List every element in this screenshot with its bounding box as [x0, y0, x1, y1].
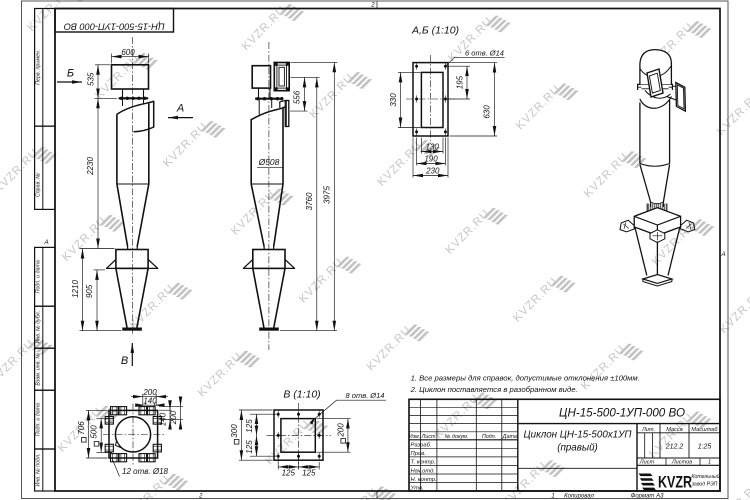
- svg-text:Дата: Дата: [502, 434, 517, 440]
- svg-text:Копировал: Копировал: [564, 494, 594, 500]
- svg-text:130: 130: [426, 143, 440, 152]
- svg-text:Листов: Листов: [671, 460, 692, 466]
- svg-text:А,Б (1:10): А,Б (1:10): [411, 25, 459, 37]
- svg-text:Инв. № дубл.: Инв. № дубл.: [36, 311, 42, 344]
- svg-text:Перв. примен.: Перв. примен.: [36, 50, 42, 85]
- svg-text:200: 200: [169, 410, 178, 425]
- svg-text:Н. контр.: Н. контр.: [411, 477, 437, 483]
- svg-text:8 отв. Ø14: 8 отв. Ø14: [346, 391, 385, 400]
- svg-text:300: 300: [230, 424, 239, 438]
- svg-text:2: 2: [370, 3, 375, 9]
- svg-text:190: 190: [424, 155, 438, 164]
- svg-text:Подп.: Подп.: [482, 434, 496, 440]
- svg-text:Масштаб: Масштаб: [691, 427, 718, 433]
- svg-text:230: 230: [425, 167, 440, 176]
- svg-text:Подп. и дата: Подп. и дата: [36, 403, 42, 436]
- svg-text:125: 125: [245, 440, 254, 454]
- svg-text:Ø508: Ø508: [258, 157, 280, 167]
- svg-text:(правый): (правый): [557, 443, 598, 454]
- svg-text:ЦН-15-500-1УП-000 ВО: ЦН-15-500-1УП-000 ВО: [559, 405, 685, 419]
- svg-text:Разраб.: Разраб.: [411, 443, 432, 449]
- svg-text:Б: Б: [67, 68, 74, 80]
- svg-text:Формат А3: Формат А3: [631, 494, 664, 500]
- svg-text:А: А: [43, 239, 48, 246]
- svg-text:2: 2: [198, 494, 203, 500]
- svg-text:140: 140: [158, 412, 167, 426]
- svg-text:В: В: [121, 355, 128, 367]
- svg-text:6 отв. Ø14: 6 отв. Ø14: [465, 49, 504, 58]
- svg-text:905: 905: [85, 284, 94, 298]
- svg-text:Нач.отд.: Нач.отд.: [411, 468, 435, 474]
- svg-text:Пров.: Пров.: [411, 451, 426, 457]
- svg-text:1. Все размеры для справок, д: 1. Все размеры для справок, допустимые о…: [411, 374, 640, 383]
- svg-text:KVZR: KVZR: [658, 474, 692, 492]
- svg-text:330: 330: [389, 93, 398, 107]
- svg-text:1: 1: [708, 460, 711, 466]
- svg-text:Лист: Лист: [639, 460, 655, 466]
- svg-text:Лит.: Лит.: [641, 427, 655, 433]
- svg-text:1210: 1210: [71, 280, 80, 298]
- svg-text:Подп. и дата: Подп. и дата: [36, 260, 42, 293]
- svg-text:12 отв. Ø18: 12 отв. Ø18: [122, 467, 169, 476]
- svg-text:600: 600: [121, 48, 135, 57]
- svg-text:А: А: [176, 103, 184, 115]
- svg-text:Лист: Лист: [421, 434, 436, 440]
- svg-text:630: 630: [483, 105, 492, 119]
- svg-text:200: 200: [336, 423, 345, 438]
- svg-text:Взам. инв. №: Взам. инв. №: [36, 353, 42, 386]
- svg-text:В (1:10): В (1:10): [283, 389, 320, 401]
- svg-text:556: 556: [293, 90, 302, 104]
- svg-text:212,2: 212,2: [665, 443, 684, 450]
- svg-text:706: 706: [77, 421, 86, 435]
- svg-text:125: 125: [245, 419, 254, 433]
- svg-text:140: 140: [143, 396, 157, 405]
- svg-text:2230: 2230: [86, 157, 95, 176]
- svg-text:535: 535: [87, 72, 96, 86]
- svg-text:125: 125: [282, 468, 296, 477]
- svg-text:Масса: Масса: [666, 427, 683, 433]
- svg-text:Изм.: Изм.: [409, 434, 421, 440]
- svg-text:195: 195: [456, 75, 465, 89]
- svg-text:3760: 3760: [305, 192, 314, 210]
- svg-text:1:25: 1:25: [698, 443, 712, 450]
- svg-text:1: 1: [551, 494, 554, 500]
- svg-text:500: 500: [90, 425, 99, 439]
- svg-text:Инв. № подл.: Инв. № подл.: [36, 454, 42, 487]
- svg-text:3975: 3975: [323, 186, 332, 204]
- svg-text:А: А: [720, 252, 725, 258]
- svg-text:Котельный: Котельный: [691, 473, 719, 480]
- svg-text:Т. контр.: Т. контр.: [411, 460, 436, 466]
- svg-text:125: 125: [302, 468, 316, 477]
- svg-text:2. Циклон поставляется в разо: 2. Циклон поставляется в разобранном вид…: [410, 385, 578, 394]
- svg-text:Справ. №: Справ. №: [36, 173, 42, 197]
- svg-text:№ докум.: № докум.: [445, 434, 469, 440]
- svg-text:ЦН-15-500-1УП-000 ВО: ЦН-15-500-1УП-000 ВО: [63, 21, 165, 32]
- svg-text:Утв.: Утв.: [410, 485, 424, 491]
- svg-text:завод РЭП: завод РЭП: [691, 482, 718, 488]
- svg-text:Циклон ЦН-15-500х1УП: Циклон ЦН-15-500х1УП: [524, 429, 633, 440]
